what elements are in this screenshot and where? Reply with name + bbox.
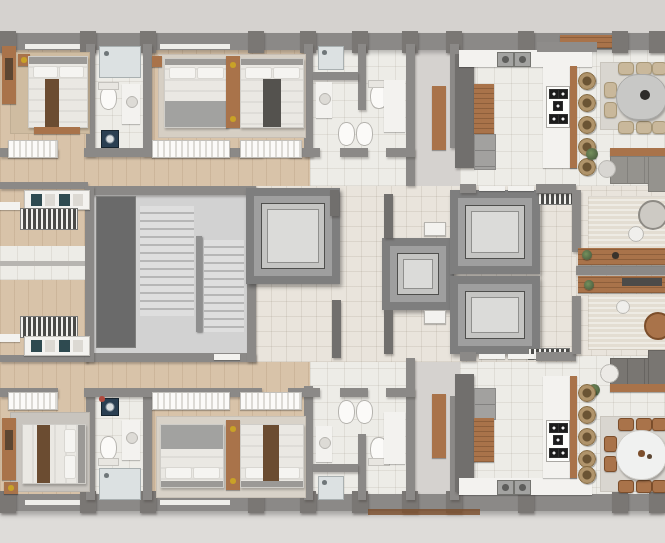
bidet (356, 400, 373, 424)
shower (318, 46, 344, 70)
dining-chair (652, 480, 665, 493)
dresser (8, 140, 58, 158)
wall-kitchen-lobby-top-b (536, 184, 576, 193)
wall-lobby-stub-lower (332, 300, 341, 358)
pillow (197, 67, 224, 79)
headboard (161, 481, 223, 487)
wall-unit-divider-right (576, 266, 665, 275)
bed-blanket (161, 425, 223, 449)
closet-hanging-rail-bottom (20, 316, 78, 338)
pillow (165, 467, 192, 479)
wall-elevator2-stub-top (384, 194, 393, 238)
pillow (245, 67, 272, 79)
burner (558, 114, 568, 124)
tv-flatscreen (622, 278, 662, 286)
wash-basin (319, 437, 331, 449)
shower-drain (104, 473, 109, 478)
sofa-chaise-top (648, 156, 665, 192)
bar-stool (578, 466, 596, 484)
window-sill-top (25, 44, 80, 49)
burner (558, 423, 568, 433)
burner (558, 448, 568, 458)
table-lamp (230, 426, 236, 432)
window-sill-top (160, 44, 230, 49)
bar-stool (578, 158, 596, 176)
wall-living-lobby-top (572, 190, 581, 252)
folded-clothes (45, 340, 55, 352)
folded-clothes (59, 194, 70, 206)
door-leaf-lobby-bottom (479, 354, 505, 359)
shower-drain (104, 51, 109, 56)
wall-kitchen-lobby-bottom-a (460, 352, 476, 361)
closet-ledge (0, 334, 20, 342)
bar-stool (578, 94, 596, 112)
elevator-4 (450, 276, 540, 354)
nightstand (152, 56, 162, 67)
island-wood-side (570, 376, 577, 478)
stair-door (214, 354, 240, 360)
wall-bath-front-bottom (340, 388, 368, 397)
toilet (338, 122, 355, 146)
headboard (29, 57, 87, 64)
pillow (169, 67, 196, 79)
closet-shelf-top (24, 190, 90, 210)
toilet (338, 400, 355, 424)
background-lower-band (0, 511, 665, 543)
kitchen-sink (514, 52, 531, 67)
facade-column (649, 491, 665, 513)
closet-ledge (0, 202, 20, 210)
wall-bedroom2-left-top (143, 44, 152, 156)
island-wood-side (570, 66, 577, 168)
accent-decor (99, 396, 105, 402)
refrigerator-bottom (474, 388, 496, 420)
pillow (33, 66, 58, 78)
bedroom2-bed-b-bottom (240, 424, 304, 488)
dining-chair (618, 480, 634, 493)
bath-vanity (316, 82, 332, 118)
headboard (241, 59, 303, 65)
wall-bath-right-top (406, 44, 415, 186)
bar-stool (578, 72, 596, 90)
bath-vanity (122, 84, 140, 124)
cooktop (546, 420, 570, 462)
dresser (240, 140, 302, 158)
wall-bath-right-bottom (406, 358, 415, 500)
side-table (616, 300, 630, 314)
burner (553, 435, 563, 445)
kitchen-tall-cabinet-top (455, 54, 474, 168)
kitchen-sink (514, 480, 531, 495)
dining-chair (652, 121, 665, 134)
toilet-tank (98, 82, 119, 90)
upper-cabinet-top (537, 42, 597, 52)
wall-bath-front-top (340, 148, 368, 157)
table-lamp (230, 478, 236, 484)
folded-clothes (31, 194, 42, 206)
pillow (59, 66, 84, 78)
bath-vanity (316, 426, 332, 462)
folded-clothes (59, 340, 70, 352)
wall-living-lobby-bottom (572, 296, 581, 354)
elevator-call-panel-top (424, 222, 446, 236)
window-sill-bottom (25, 500, 80, 505)
sofa-chaise-bottom (648, 350, 665, 386)
kitchen-sink (497, 52, 514, 67)
facade-column (612, 491, 628, 513)
folded-clothes (73, 340, 83, 352)
bed-runner (263, 425, 279, 481)
folded-clothes (45, 194, 55, 206)
table-lamp (8, 485, 14, 491)
sofa-front-shelf-bottom (610, 384, 665, 392)
wall-bath-stub-top (313, 72, 358, 80)
window-sill-bottom (160, 500, 230, 505)
pillow (273, 67, 300, 79)
wash-basin (126, 432, 138, 444)
elevator-2-cab (403, 259, 433, 289)
wall-lobby-stub-upper (330, 190, 339, 216)
dining-chair (618, 62, 634, 75)
bedroom1-bed-bottom (22, 424, 86, 484)
cooktop (546, 86, 570, 128)
pouf (598, 160, 616, 178)
bath-vanity (122, 420, 140, 460)
bed-runner (45, 79, 59, 127)
shower (318, 476, 344, 500)
sofa-back-shelf-top (610, 148, 665, 156)
dresser (240, 392, 302, 410)
stair-flight-right (204, 240, 244, 332)
facade-column (0, 491, 16, 513)
dining-chair (604, 102, 617, 118)
headboard (165, 59, 227, 65)
service-rack-top (538, 193, 574, 205)
facade-column (649, 31, 665, 53)
table-centerpiece (640, 90, 650, 100)
pillow (193, 467, 220, 479)
wall-stair-ring-top (85, 186, 256, 195)
table-lamp (21, 57, 27, 63)
coffee-table-wood (644, 312, 665, 340)
dresser (152, 140, 230, 158)
table-decor (638, 450, 645, 457)
table-decor (647, 454, 652, 459)
wash-basin (126, 96, 138, 108)
wall-bath-front-top (386, 148, 415, 157)
dining-chair (652, 62, 665, 75)
wall-unit-divider-left (0, 261, 88, 266)
wash-basin (319, 93, 331, 105)
bedroom1-bed-top (28, 56, 88, 128)
dining-chair (618, 418, 634, 431)
shower (99, 46, 141, 78)
elevator-4-cab (471, 297, 519, 333)
bed-runner (37, 425, 50, 483)
wall-bedroom2-left-bottom (143, 388, 152, 500)
dining-chair (604, 436, 617, 452)
folded-clothes (31, 340, 42, 352)
table-lamp (230, 116, 236, 122)
bed-bench (34, 127, 80, 134)
shower (99, 468, 141, 500)
headboard (241, 481, 303, 487)
dresser (8, 392, 58, 410)
bedroom2-bed-b-top (240, 58, 304, 128)
console-decor (5, 58, 13, 80)
shower-head (322, 50, 327, 55)
console-plant (584, 280, 594, 290)
kitchen-tall-cabinet-bottom (455, 374, 474, 492)
wall-bath-divider-top (358, 44, 366, 110)
entry-door-bottom (432, 394, 446, 458)
bed-runner (263, 79, 281, 127)
kitchen-wood-cabinet-top (474, 84, 494, 134)
stair-rail (196, 236, 202, 332)
washing-machine (101, 130, 119, 148)
kitchen-sink (497, 480, 514, 495)
shower-head (322, 480, 327, 485)
bidet (356, 122, 373, 146)
potted-plant (586, 148, 598, 160)
burner (553, 101, 563, 111)
bed-blanket (165, 101, 227, 127)
kitchen-wood-cabinet-bottom (474, 418, 494, 462)
elevator-3 (450, 190, 540, 274)
toilet (100, 436, 117, 460)
burner (558, 89, 568, 99)
door-leaf-lobby-bottom (508, 354, 534, 359)
bar-stool (578, 116, 596, 134)
door-leaf-lobby-top (479, 186, 505, 191)
dining-chair (618, 121, 634, 134)
dining-chair (604, 456, 617, 472)
wall-kitchen-lobby-bottom-b (536, 352, 576, 361)
side-table (628, 226, 644, 242)
stair-shaft (96, 196, 136, 348)
table-lamp (230, 62, 236, 68)
dining-chair (652, 418, 665, 431)
bar-stool (578, 384, 596, 402)
door-leaf-lobby-top (508, 186, 534, 191)
elevator-1 (246, 188, 340, 284)
console-plant (582, 250, 592, 260)
balcony-deck-strip (368, 509, 480, 515)
shelf-decor (5, 430, 13, 450)
wall-closet-top (0, 182, 88, 189)
folded-clothes (73, 194, 83, 206)
elevator-call-panel-bottom (424, 310, 446, 324)
dining-chair (636, 480, 652, 493)
dresser (152, 392, 230, 410)
coffee-table (638, 200, 665, 230)
wall-bath-stub-bottom (313, 464, 358, 472)
pillow (64, 429, 76, 453)
elevator-1-cab (267, 209, 319, 263)
facade-column (612, 31, 628, 53)
bar-stool (578, 428, 596, 446)
headboard (78, 425, 85, 483)
closet-hanging-rail-top (20, 208, 78, 230)
elevator-3-cab (471, 211, 519, 253)
closet-shelf-bottom (24, 336, 90, 356)
wall-bath-front-bottom (386, 388, 415, 397)
wall-bath-divider-bottom (358, 434, 366, 500)
facade-column (248, 31, 264, 53)
linen-cabinet (384, 412, 405, 464)
linen-cabinet (384, 80, 405, 132)
bedroom2-bed-a-top (164, 58, 228, 128)
side-table (600, 364, 619, 383)
console-decor-bowl (612, 252, 619, 259)
elevator-2 (382, 238, 454, 310)
bedroom2-bed-a-bottom (160, 424, 224, 488)
wall-kitchen-lobby-top-a (460, 184, 476, 193)
entry-door-top (432, 86, 446, 150)
refrigerator-top (474, 134, 496, 170)
dining-chair (636, 121, 652, 134)
stair-flight-left (140, 206, 194, 316)
pillow (64, 455, 76, 479)
wall-closet-bottom (0, 355, 88, 362)
floor-plan-canvas (0, 0, 665, 543)
bar-stool (578, 406, 596, 424)
toilet-tank (98, 458, 119, 466)
wall-elevator2-stub-bottom (384, 310, 393, 354)
